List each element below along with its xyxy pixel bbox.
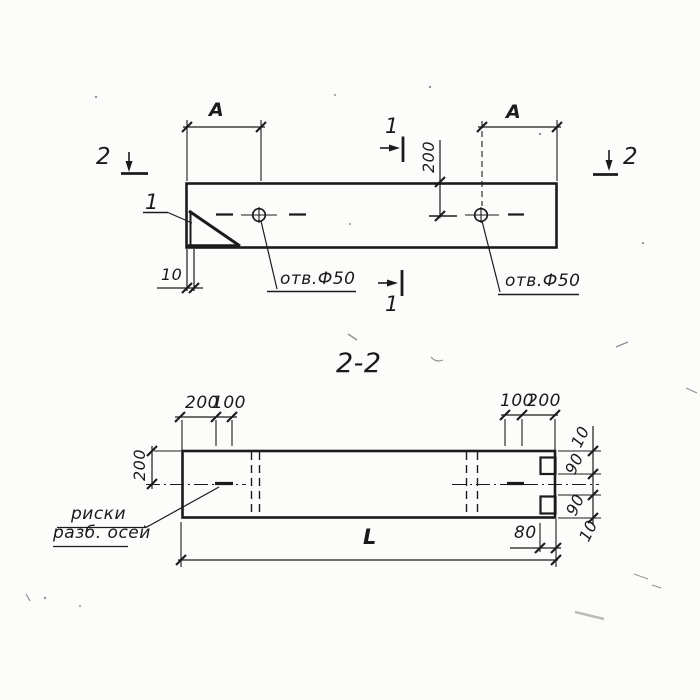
section-title: 2-2 [336, 350, 382, 377]
axis-note-line1: риски [71, 506, 126, 523]
notch-depth-dim-label: 80 [514, 525, 537, 542]
plan-corner-offset-dim-label: 10 [161, 267, 182, 283]
hole-note-left-label: отв.Ф50 [280, 271, 356, 288]
section1-mark-bottom-label: 1 [385, 294, 399, 315]
section-topright-dim2-label: 200 [527, 393, 561, 410]
span-dim-a-left-label: A [209, 101, 224, 120]
span-dim-a-right-label: A [506, 103, 521, 122]
blueprint-canvas: 2 2 1 1 1 A A 200 отв.Ф50 отв.Ф50 10 2-2… [0, 0, 700, 700]
hole-note-right-label: отв.Ф50 [505, 273, 581, 290]
section-height-dim-label: 200 [132, 447, 148, 483]
axis-note-line2: разб. осей [53, 525, 151, 542]
dimension-ticks [147, 122, 598, 565]
detail-callout-label: 1 [145, 192, 159, 213]
section2-mark-left-label: 2 [96, 146, 111, 169]
length-dim-label: L [363, 527, 377, 548]
section-topleft-dim2-label: 100 [212, 395, 246, 412]
section1-mark-top-label: 1 [385, 116, 399, 137]
section2-mark-right-label: 2 [623, 146, 638, 169]
plan-edge-to-hole-dim-label: 200 [421, 140, 437, 174]
